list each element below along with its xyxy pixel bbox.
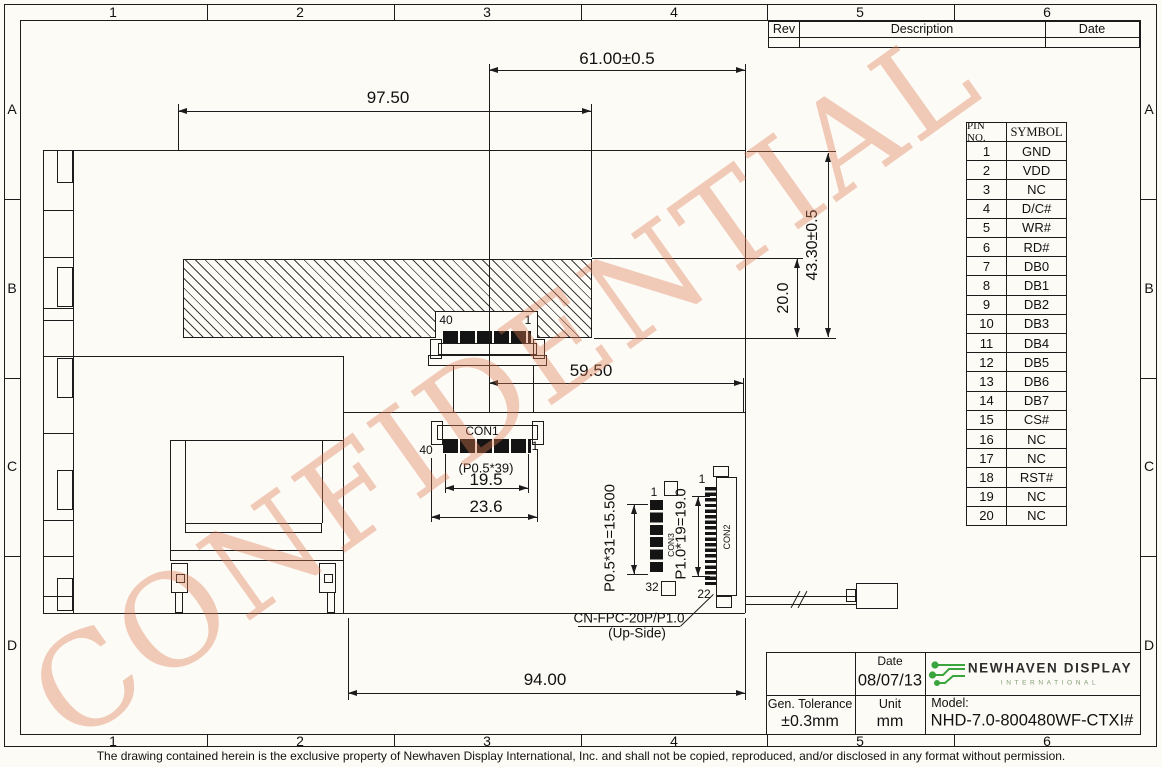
zone-col-label: 5 [856,733,864,749]
ttl-40pin-contact-strip [443,331,531,343]
pin-number: 11 [967,334,1007,352]
arrowhead [519,485,528,491]
zone-tick [954,4,955,20]
pin1-label: 1 [651,485,658,499]
frame-bar [185,523,322,533]
zone-col-label: 4 [670,4,678,20]
pin-number: 15 [967,411,1007,429]
zone-tick [581,4,582,20]
con1-label: CON1 [465,424,498,438]
arrowhead [631,505,637,514]
zone-row-label: D [7,637,17,653]
dim-line [178,111,591,112]
frame-line [170,440,171,560]
pin-number: 2 [967,161,1007,179]
title-block-divider [855,652,856,735]
zone-tick [394,4,395,20]
ext-line [594,338,836,339]
bezel-rail-tick [43,210,73,211]
logo-title: NEWHAVEN DISPLAY [968,661,1132,676]
pin-table-row: 5WR# [967,218,1066,237]
bezel-rail-line [73,150,74,613]
dim-line [634,505,635,574]
dim-line [698,497,699,576]
dim-backlight-height: 20.0 [775,282,793,313]
date-header: Date [1079,22,1105,36]
pcb-shelf-line [343,412,745,413]
frame-line [322,440,323,523]
arrowhead [736,67,745,73]
pin-table-row: 15CS# [967,410,1066,429]
zone-col-label: 1 [109,733,117,749]
fpc-stem-line [453,366,454,412]
dim-module-height: 43.30±0.5 [804,209,822,280]
pin32-label: 32 [645,580,658,594]
pin-symbol: DB2 [1007,296,1066,314]
frame-line [170,550,343,551]
zone-row-label: C [7,458,17,474]
logo-subtitle: INTERNATIONAL [1001,680,1099,687]
arrowhead [794,328,800,337]
con1-contact-strip [443,439,531,453]
newhaven-logo-icon [928,657,966,689]
con2-contact-teeth [705,487,716,585]
pin-number: 10 [967,315,1007,333]
zone-col-label: 1 [109,4,117,20]
pin40-label: 40 [419,443,432,457]
pin-table-row: 10DB3 [967,314,1066,333]
pin-table-row: 19NC [967,487,1066,506]
pin-symbol: NC [1007,449,1066,467]
ext-line [745,618,746,700]
dim-connector-offset: 59.50 [570,361,613,381]
ext-line [692,496,710,497]
arrowhead [528,514,537,520]
pin-table-row: 20NC [967,506,1066,525]
con2-tab [716,596,732,608]
pin-symbol: NC [1007,507,1066,525]
pin-number: 9 [967,296,1007,314]
pin-table-row: 17NC [967,448,1066,467]
pin1-label: 1 [525,313,532,327]
con2-ear [713,466,729,477]
fpc-orientation-label: (Up-Side) [608,626,666,641]
dim-line [431,517,537,518]
pin-number: 19 [967,488,1007,506]
ext-line [537,449,538,522]
disclaimer-text: The drawing contained herein is the excl… [0,749,1162,763]
pin-symbol: NC [1007,180,1066,198]
dim-line [348,693,745,694]
zone-row-label: A [7,101,16,117]
bezel-tab [57,150,73,183]
ext-line [627,504,648,505]
frame-line [185,440,186,523]
pin-table: PIN NO. SYMBOL 1GND 2VDD 3NC 4D/C# 5WR# … [966,122,1067,526]
bezel-rail-tick [43,308,73,309]
pin-symbol: CS# [1007,411,1066,429]
pin-symbol: NC [1007,488,1066,506]
zone-col-label: 6 [1043,4,1051,20]
pin-number: 18 [967,468,1007,486]
description-header: Description [891,22,954,36]
pin-symbol: DB0 [1007,257,1066,275]
bezel-rail-tick [43,320,73,321]
pin-table-row: 18RST# [967,467,1066,486]
dim-con2-pitch: P1.0*19=19.0 [673,488,690,579]
pin-number: 17 [967,449,1007,467]
outline-top [43,150,745,151]
bezel-rail-tick [43,520,73,521]
pin-symbol: DB4 [1007,334,1066,352]
pin-number: 14 [967,392,1007,410]
ext-line [747,151,836,152]
pin-symbol: DB7 [1007,392,1066,410]
ttl-connector-base [428,355,547,366]
zone-col-label: 3 [483,4,491,20]
rev-table-divider [799,21,800,48]
model-label: Model: [931,696,969,710]
pin-table-row: 9DB2 [967,295,1066,314]
ext-line [591,104,592,257]
pin-number: 3 [967,180,1007,198]
dim-line [445,488,528,489]
pin-number: 13 [967,372,1007,390]
inner-step-line [73,356,343,357]
bezel-tab [57,358,73,398]
cable-line [746,604,856,605]
pin-table-row: 1GND [967,141,1066,160]
pin-table-row: 12DB5 [967,352,1066,371]
pin-symbol: GND [1007,142,1066,160]
bezel-rail-tick [43,556,73,557]
arrowhead [794,259,800,268]
pin-number: 5 [967,219,1007,237]
zone-col-label: 2 [296,733,304,749]
unit-label: Unit [879,697,901,711]
fpc-connector-label: CN-FPC-20P/P1.0 [573,611,684,626]
arrowhead [825,153,831,162]
zone-tick [1141,378,1157,379]
pin-table-row: 6RD# [967,237,1066,256]
arrowhead [695,497,701,506]
pin-symbol: WR# [1007,219,1066,237]
fpc-stem-line [533,366,534,412]
zone-row-label: D [1144,637,1154,653]
model-value: NHD-7.0-800480WF-CTXI# [931,712,1134,731]
pin-number: 4 [967,200,1007,218]
upper-step-line [592,258,803,259]
mounting-foot-leg [175,592,183,613]
pin-symbol: DB1 [1007,276,1066,294]
pin-number: 12 [967,353,1007,371]
bezel-tab [57,267,73,307]
outline-left [43,150,44,613]
ext-line [692,576,710,577]
dim-upper-width: 97.50 [367,88,410,108]
pin-table-row: 4D/C# [967,199,1066,218]
zone-tick [581,735,582,747]
pin-table-row: 16NC [967,429,1066,448]
arrowhead [489,67,498,73]
arrowhead [631,565,637,574]
arrowhead [695,567,701,576]
mounting-foot-hole [176,574,185,583]
zone-tick [767,4,768,20]
zone-tick [207,4,208,20]
bezel-tab [57,470,73,510]
pin-table-row: 8DB1 [967,275,1066,294]
outline-right [745,150,746,613]
ext-line [745,64,746,150]
dim-pcb-width: 94.00 [524,670,567,690]
pin1-label: 1 [699,472,706,486]
pin-table-row: 3NC [967,179,1066,198]
pin-number: 16 [967,430,1007,448]
rev-table-divider [768,37,1140,38]
ext-line [743,378,744,412]
pin-symbol: RD# [1007,238,1066,256]
dim-con1-width: 19.5 [469,470,502,490]
date-label: Date [877,654,902,668]
zone-col-label: 4 [670,733,678,749]
ext-line [431,458,432,522]
zone-tick [394,735,395,747]
zone-row-label: B [7,280,16,296]
pin-symbol: NC [1007,430,1066,448]
pin-table-row: 7DB0 [967,256,1066,275]
arrowhead [489,380,498,386]
arrowhead [178,108,187,114]
pin-number: 1 [967,142,1007,160]
pin-table-row: 11DB4 [967,333,1066,352]
zone-col-label: 6 [1043,733,1051,749]
pin-no-header: PIN NO. [967,123,1007,141]
frame-line [170,440,343,441]
pin-symbol: DB5 [1007,353,1066,371]
dim-line [489,70,745,71]
date-value: 08/07/13 [858,672,922,691]
mounting-foot-leg [327,592,335,613]
pin40-label: 40 [439,313,452,327]
arrowhead [431,514,440,520]
ext-line [627,574,648,575]
arrowhead [348,690,357,696]
zone-row-label: C [1144,458,1154,474]
zone-col-label: 5 [856,4,864,20]
backlight-plug [856,583,898,609]
ext-line [528,454,529,493]
con2-label: CON2 [722,524,732,549]
ext-line [348,618,349,700]
rev-table-divider [1045,21,1046,48]
arrowhead [734,380,743,386]
zone-tick [4,556,20,557]
mounting-foot-hole [324,574,333,583]
symbol-header: SYMBOL [1007,123,1066,141]
pin-table-row: 2VDD [967,160,1066,179]
backlight-plug-tab [846,589,856,602]
zone-tick [4,378,20,379]
pin-table-header: PIN NO. SYMBOL [967,123,1066,141]
bezel-rail-tick [43,433,73,434]
zone-tick [207,735,208,747]
rev-header: Rev [773,22,795,36]
zone-tick [767,735,768,747]
dim-line [489,383,743,384]
zone-tick [4,199,20,200]
drawing-sheet: 1 2 3 4 5 6 1 2 3 4 5 6 A B C D A B C D … [0,0,1162,767]
arrowhead [582,108,591,114]
dim-con1-body: 23.6 [469,497,502,517]
pin-number: 20 [967,507,1007,525]
con3-contact-strip [650,500,663,574]
pin-symbol: DB3 [1007,315,1066,333]
dim-top-offset: 61.00±0.5 [579,49,655,69]
unit-value: mm [877,713,904,731]
tolerance-value: ±0.3mm [781,713,839,731]
frame-line [170,560,343,561]
ext-line [178,104,179,150]
pin-number: 6 [967,238,1007,256]
centerline [489,64,490,412]
zone-row-label: B [1144,280,1153,296]
pin-symbol: DB6 [1007,372,1066,390]
zone-tick [954,735,955,747]
pin-number: 7 [967,257,1007,275]
pin-table-row: 13DB6 [967,371,1066,390]
pin-symbol: D/C# [1007,200,1066,218]
zone-row-label: A [1144,101,1153,117]
pin-symbol: RST# [1007,468,1066,486]
arrowhead [445,485,454,491]
pin-table-row: 14DB7 [967,391,1066,410]
bezel-rail-tick [43,356,73,357]
bezel-rail-tick [43,257,73,258]
arrowhead [736,690,745,696]
zone-col-label: 2 [296,4,304,20]
pcb-left-edge [343,356,344,613]
title-block-divider [925,652,926,735]
dim-line [828,153,829,337]
con3-pad [661,581,676,596]
dim-line [797,259,798,337]
cable-line [746,596,856,597]
tolerance-label: Gen. Tolerance [768,697,853,711]
pin-number: 8 [967,276,1007,294]
pin-symbol: VDD [1007,161,1066,179]
zone-tick [1141,199,1157,200]
arrowhead [825,328,831,337]
zone-tick [1141,556,1157,557]
ttl-connector-bar [438,343,537,355]
zone-col-label: 3 [483,733,491,749]
bezel-tab [57,578,73,611]
dim-con3-pitch: P0.5*31=15.500 [602,484,619,592]
